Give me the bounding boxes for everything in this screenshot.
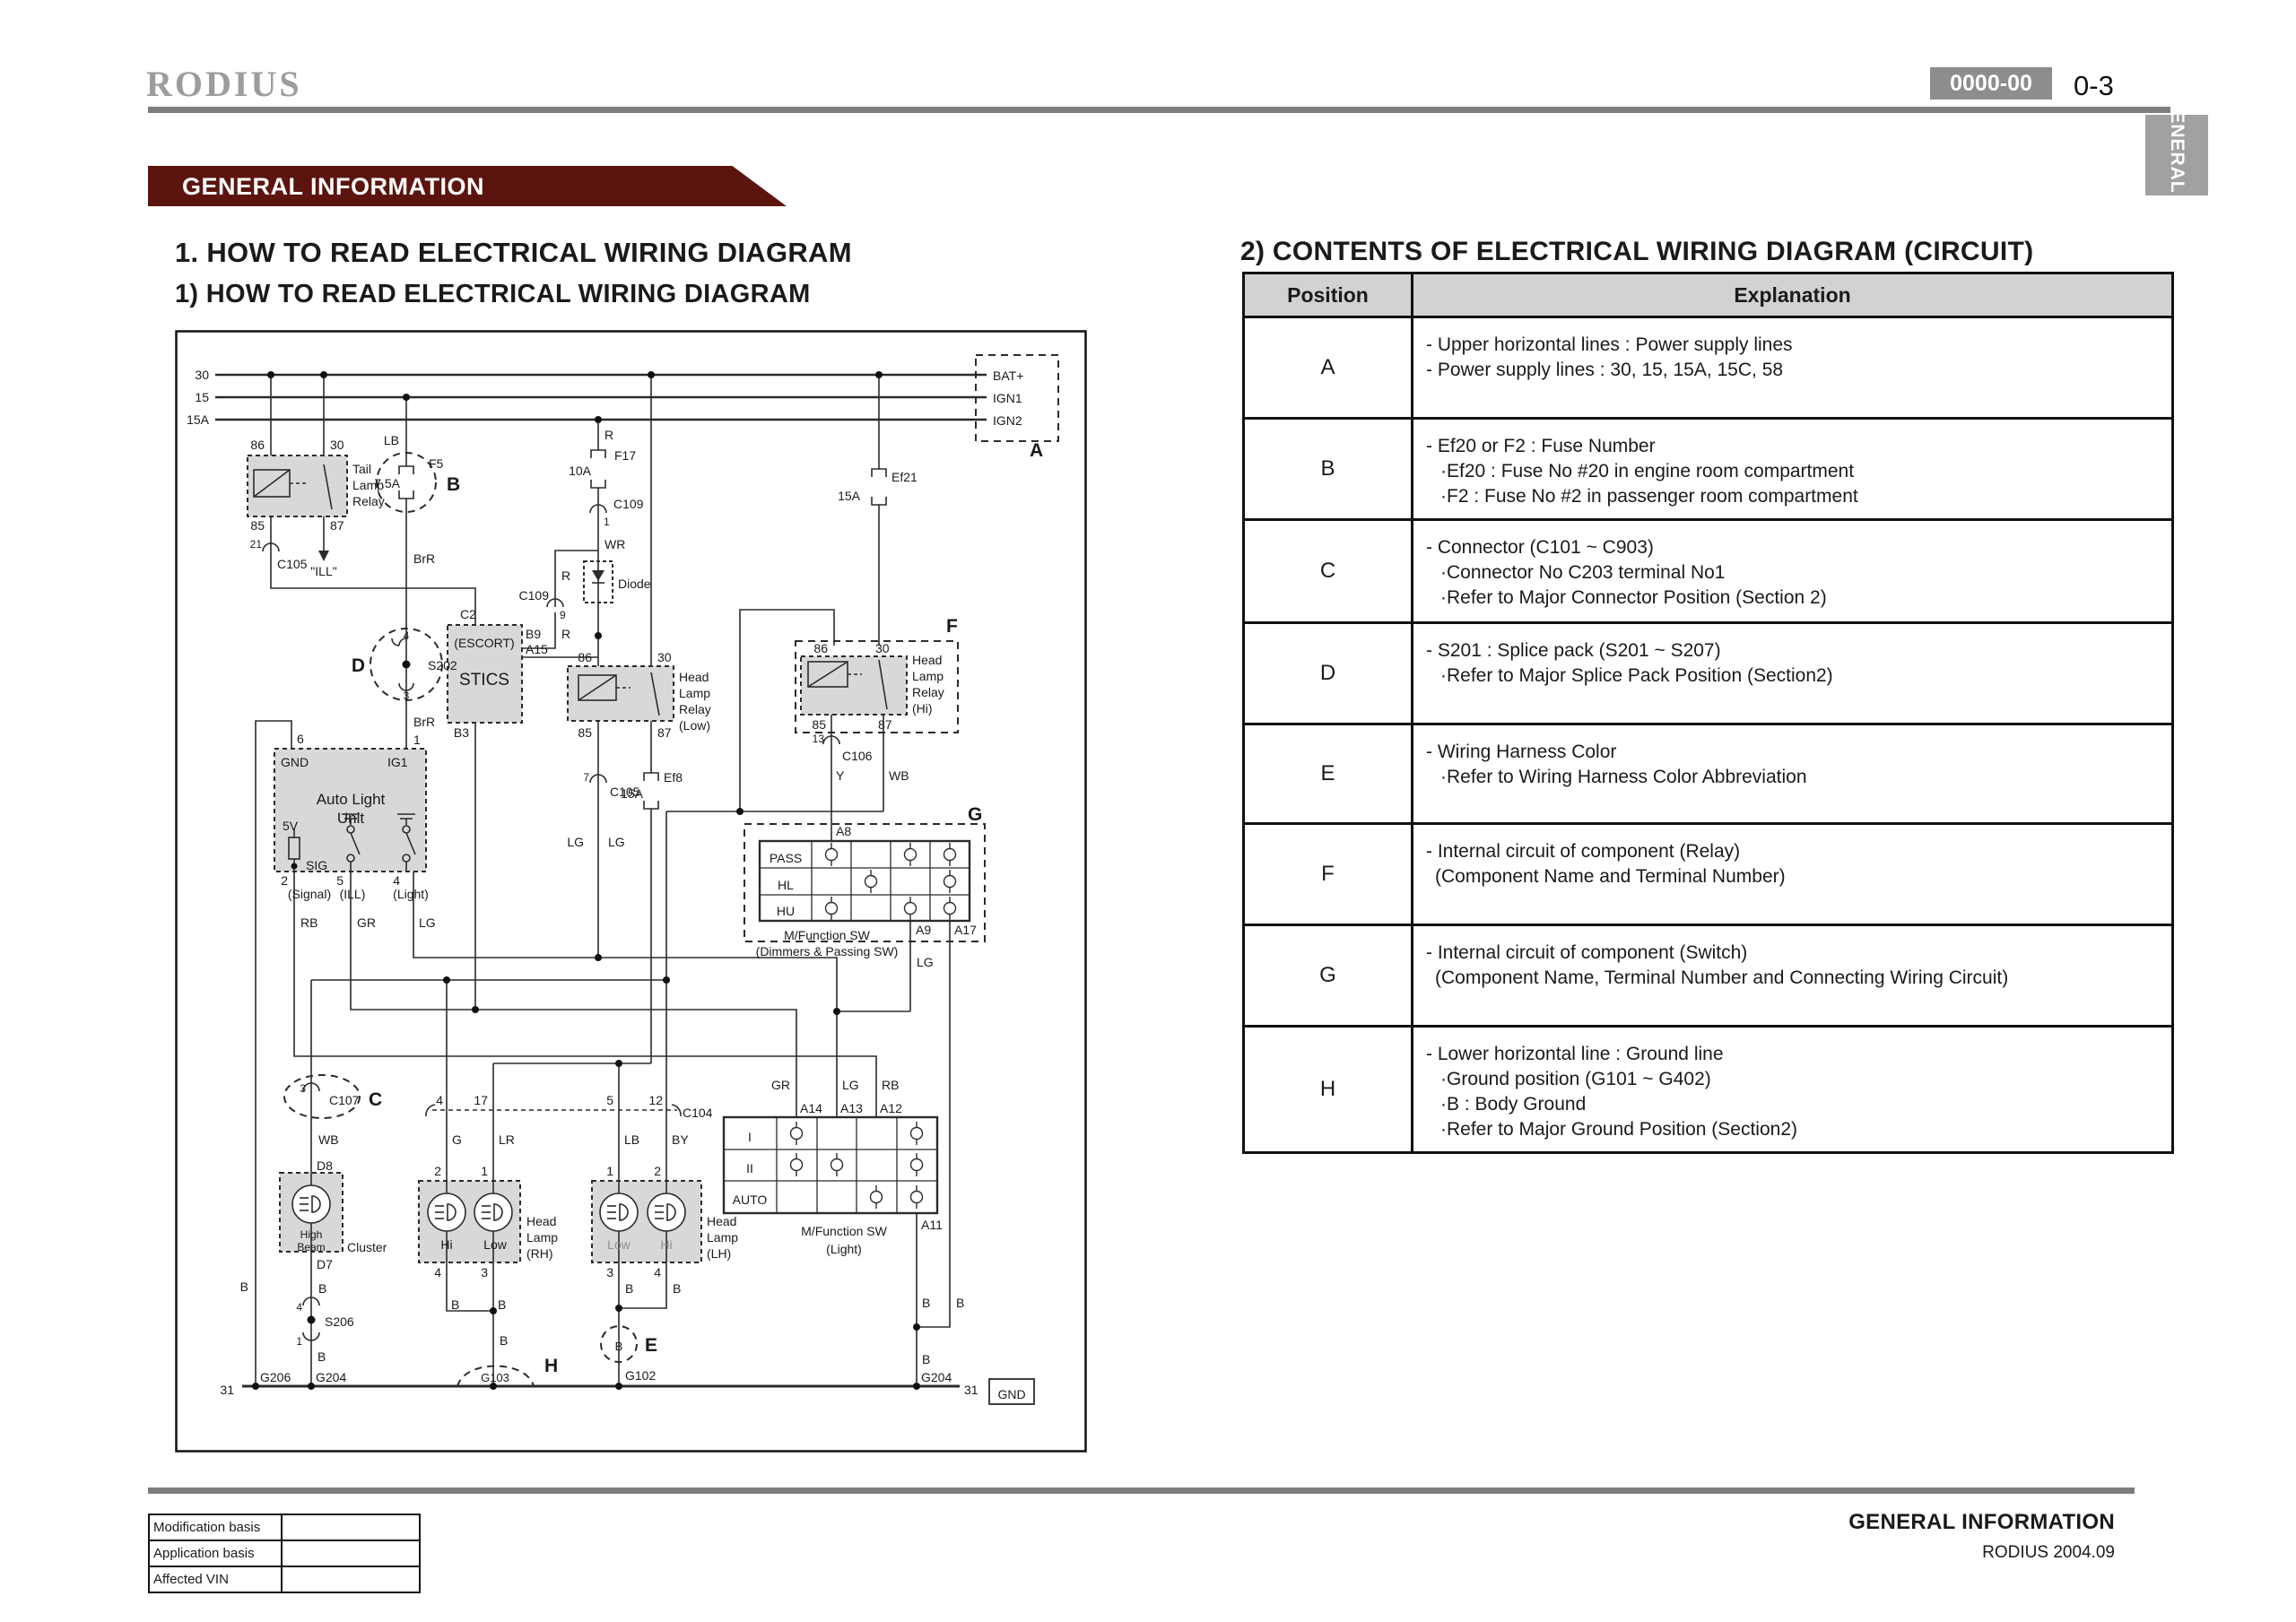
table-row: H- Lower horizontal line : Ground line·G… (1245, 1028, 2171, 1151)
diagram-label: E (645, 1335, 657, 1356)
diagram-label: C2 (460, 607, 476, 621)
ill-arrowhead (318, 551, 329, 561)
diagram-label: R (561, 627, 570, 641)
diagram-label: Beam (297, 1241, 325, 1253)
explanation-line: ·F2 : Fuse No #2 in passenger room compa… (1440, 484, 2161, 509)
diagram-label: B (500, 1333, 508, 1348)
diagram-label: B (922, 1352, 930, 1366)
diagram-label: R (604, 428, 613, 442)
fuse-F17-icon (591, 450, 605, 488)
diagram-label: LB (624, 1132, 639, 1147)
row-explanation: - S201 : Splice pack (S201 ~ S207)·Refer… (1413, 624, 2171, 723)
diagram-label: A (1030, 440, 1043, 461)
row-position: F (1245, 825, 1413, 924)
diagram-label: 4 (436, 1093, 443, 1107)
diagram-label: 2 (434, 1164, 441, 1178)
diagram-label: 1 (413, 733, 421, 747)
diagram-label: C109 (519, 588, 550, 603)
diagram-label: STICS (459, 671, 509, 690)
switch-tables (724, 841, 970, 1213)
diagram-label: A15 (526, 642, 548, 656)
diagram-label: 86 (578, 650, 592, 664)
diagram-label: A9 (916, 923, 931, 937)
diagram-label: SIG (306, 858, 327, 872)
diagram-label: II (746, 1161, 753, 1175)
diagram-label: IGN1 (993, 391, 1022, 405)
section-banner-title: GENERAL INFORMATION (182, 173, 484, 201)
explanation-line: ·Refer to Wiring Harness Color Abbreviat… (1440, 765, 2161, 790)
diagram-label: 30 (657, 650, 672, 664)
diagram-label: 4 (654, 1265, 661, 1279)
main-heading: 1. HOW TO READ ELECTRICAL WIRING DIAGRAM (175, 237, 852, 269)
diagram-label: G (452, 1132, 462, 1147)
diagram-label: G206 (260, 1370, 291, 1384)
sub-heading: 1) HOW TO READ ELECTRICAL WIRING DIAGRAM (175, 280, 811, 309)
diagram-label: A8 (836, 824, 851, 838)
diagram-label: B3 (454, 725, 469, 740)
diagram-label: 7.5A (374, 476, 400, 490)
diagram-label: Lamp (707, 1230, 738, 1245)
diagram-label: Hi (660, 1237, 672, 1252)
diagram-label: Y (836, 768, 845, 783)
diagram-label: GND (281, 755, 309, 769)
diagram-label: A14 (800, 1101, 822, 1115)
revision-label: Application basis (150, 1541, 283, 1566)
explanation-line: - Power supply lines : 30, 15, 15A, 15C,… (1426, 358, 2161, 383)
diagram-label: "ILL" (310, 564, 336, 578)
diagram-label: HL (778, 878, 794, 892)
diagram-label: S202 (428, 658, 457, 672)
diagram-label: G102 (625, 1368, 656, 1383)
diagram-label: RB (882, 1078, 899, 1092)
fuse-F5-icon (399, 466, 413, 499)
diagram-label: A17 (954, 923, 977, 937)
explanation-line: - Lower horizontal line : Ground line (1426, 1042, 2161, 1067)
diagram-label: Ef8 (664, 770, 683, 785)
diagram-label: B (625, 1281, 633, 1296)
diagram-label: Auto Light (317, 791, 386, 808)
column-header-explanation: Explanation (1413, 274, 2171, 316)
diagram-label: Low (483, 1237, 508, 1252)
diagram-label: 3 (481, 1265, 488, 1279)
explanation-line: - Ef20 or F2 : Fuse Number (1426, 434, 2161, 459)
row-explanation: - Connector (C101 ~ C903)·Connector No C… (1413, 521, 2171, 621)
diagram-label: LG (842, 1078, 859, 1092)
diagram-label: 86 (813, 641, 828, 655)
revision-label: Modification basis (150, 1515, 283, 1540)
explanation-line: - Internal circuit of component (Switch) (1426, 941, 2161, 966)
explanation-line: (Component Name and Terminal Number) (1435, 864, 2161, 889)
diagram-label: 31 (964, 1383, 978, 1397)
diagram-label: GR (771, 1078, 790, 1092)
diagram-label: RB (300, 915, 317, 930)
diagram-label: M/Function SW (801, 1224, 887, 1238)
diagram-label: 15A (621, 786, 644, 801)
row-explanation: - Ef20 or F2 : Fuse Number·Ef20 : Fuse N… (1413, 420, 2171, 518)
side-tab-general[interactable]: GENERAL (2145, 115, 2208, 195)
diagram-label: (Signal) (288, 887, 331, 901)
header-rule (148, 107, 2170, 113)
diagram-label: B (240, 1279, 248, 1294)
diagram-label: B (451, 1297, 459, 1312)
side-tab-label: GENERAL (2167, 115, 2187, 179)
diagram-label: Cluster (347, 1240, 387, 1254)
row-position: C (1245, 521, 1413, 621)
diagram-label: BAT+ (993, 369, 1023, 383)
diagram-label: WB (889, 768, 909, 783)
diagram-label: I (748, 1130, 752, 1144)
diagram-label: Diode (618, 577, 651, 591)
explanation-line: ·B : Body Ground (1440, 1092, 2161, 1117)
diagram-label: 1 (606, 1164, 613, 1178)
diagram-label: 87 (330, 518, 344, 533)
diagram-label: A13 (840, 1101, 863, 1115)
revision-value (283, 1515, 419, 1540)
explanation-line: ·Refer to Major Ground Position (Section… (1440, 1117, 2161, 1142)
wiring-diagram: 301515ABAT+IGN1IGN2A86308587TailLampRela… (175, 330, 1087, 1453)
diagram-label: PASS (770, 851, 802, 865)
diagram-label: 31 (220, 1383, 234, 1397)
explanation-line: ·Refer to Major Splice Pack Position (Se… (1440, 664, 2161, 689)
diagram-label: 2 (281, 873, 288, 888)
diagram-label: 15A (838, 489, 861, 503)
revision-table: Modification basisApplication basisAffec… (148, 1514, 421, 1593)
diagram-label: 12 (648, 1093, 663, 1107)
row-position: G (1245, 926, 1413, 1025)
footer-section-title: GENERAL INFORMATION (1848, 1510, 2115, 1535)
diagram-label: BY (672, 1132, 689, 1147)
row-position: D (1245, 624, 1413, 723)
table-row: D- S201 : Splice pack (S201 ~ S207)·Refe… (1245, 624, 2171, 725)
diagram-label: 6 (297, 732, 304, 746)
diagram-label: G103 (481, 1371, 509, 1384)
column-header-position: Position (1245, 274, 1413, 316)
diagram-label: (Dimmers & Passing SW) (756, 944, 899, 958)
explanation-line: ·Refer to Major Connector Position (Sect… (1440, 585, 2161, 611)
explanation-line: - Wiring Harness Color (1426, 740, 2161, 765)
explanation-table: Position Explanation A- Upper horizontal… (1242, 272, 2174, 1154)
diagram-label: IGN2 (993, 413, 1022, 428)
diode-triangle (592, 570, 604, 581)
diagram-label: 3 (300, 1082, 306, 1095)
revision-row: Application basis (150, 1541, 419, 1567)
row-position: E (1245, 725, 1413, 822)
footer-rule (148, 1488, 2135, 1494)
diagram-label: Tail (352, 462, 371, 476)
diagram-label: Lamp (526, 1230, 558, 1245)
diagram-label: 3 (606, 1265, 613, 1279)
diagram-label: (RH) (526, 1246, 553, 1261)
diagram-label: B (318, 1281, 326, 1296)
diagram-label: B (956, 1296, 964, 1310)
brand-logo: RODIUS (146, 63, 302, 105)
row-explanation: - Internal circuit of component (Relay)(… (1413, 825, 2171, 924)
diagram-label: 85 (812, 717, 826, 732)
diagram-label: GND (997, 1387, 1025, 1401)
table-row: G- Internal circuit of component (Switch… (1245, 926, 2171, 1028)
diagram-label: 86 (250, 438, 265, 452)
section-code-badge: 0000-00 (1930, 67, 2052, 100)
diagram-label: R (561, 568, 570, 583)
diagram-label: Lamp (679, 686, 710, 700)
table-row: F- Internal circuit of component (Relay)… (1245, 825, 2171, 926)
diagram-label: F (946, 616, 958, 637)
diagram-label: 5V (283, 819, 299, 833)
diagram-label: BrR (413, 551, 435, 566)
diagram-label: 15 (195, 390, 209, 404)
diagram-label: 4 (296, 1301, 302, 1314)
diagram-label: 1 (481, 1164, 488, 1178)
fuse-Ef8-icon (644, 773, 658, 809)
diagram-label: 1 (296, 1335, 302, 1348)
diagram-label: (LH) (707, 1246, 731, 1261)
diagram-label: Lamp (912, 669, 944, 683)
diagram-label: Relay (679, 702, 711, 716)
row-position: A (1245, 318, 1413, 417)
explanation-line: (Component Name, Terminal Number and Con… (1435, 966, 2161, 991)
diagram-label: 15A (187, 412, 210, 427)
diagram-label: LG (608, 835, 625, 849)
explanation-line: ·Ground position (G101 ~ G402) (1440, 1067, 2161, 1092)
diagram-label: 30 (195, 368, 209, 382)
diagram-label: LR (499, 1132, 515, 1147)
diagram-label: D7 (317, 1257, 333, 1271)
diagram-label: 7 (583, 771, 589, 784)
diagram-label: A11 (921, 1218, 943, 1232)
diagram-label: Ef21 (891, 470, 918, 484)
diagram-label: LG (567, 835, 584, 849)
diagram-label: C107 (329, 1093, 360, 1107)
diagram-label: HU (777, 904, 795, 918)
diagram-label: F17 (614, 448, 636, 463)
diagram-label: WB (318, 1132, 339, 1147)
diagram-label: (Hi) (912, 701, 933, 716)
diagram-label: 30 (330, 438, 344, 452)
footer-model-version: RODIUS 2004.09 (1848, 1543, 2115, 1563)
diagram-label: Head (679, 670, 709, 684)
fuse-Ef21-icon (872, 469, 886, 505)
diagram-label: 9 (560, 609, 566, 621)
diagram-label: Relay (912, 685, 944, 699)
diagram-label: (Light) (393, 887, 429, 901)
explanation-line: - Internal circuit of component (Relay) (1426, 839, 2161, 864)
diagram-label: D8 (317, 1158, 333, 1173)
diagram-label: 2 (654, 1164, 661, 1178)
explanation-table-header: Position Explanation (1245, 274, 2171, 318)
diagram-label: 3 (404, 690, 410, 702)
diagram-label: WR (604, 537, 625, 551)
diagram-label: B (615, 1340, 623, 1353)
diagram-label: M/Function SW (784, 928, 870, 942)
diagram-label: D (352, 655, 365, 676)
row-explanation: - Internal circuit of component (Switch)… (1413, 926, 2171, 1025)
row-position: H (1245, 1028, 1413, 1151)
explanation-line: - Upper horizontal lines : Power supply … (1426, 333, 2161, 358)
table-row: A- Upper horizontal lines : Power supply… (1245, 318, 2171, 420)
diagram-label: LB (384, 433, 399, 447)
diagram-label: BrR (413, 715, 435, 729)
diagram-label: 17 (474, 1093, 488, 1107)
diagram-label: C105 (277, 557, 308, 571)
section-banner: GENERAL INFORMATION (148, 166, 787, 206)
diagram-label: 4 (404, 629, 410, 642)
row-explanation: - Upper horizontal lines : Power supply … (1413, 318, 2171, 417)
diagram-label: H (544, 1356, 558, 1376)
revision-row: Affected VIN (150, 1567, 419, 1592)
diagram-label: C106 (842, 749, 873, 763)
diagram-label: IG1 (387, 755, 408, 769)
diagram-label: 13 (813, 733, 825, 745)
diagram-label: G204 (921, 1370, 952, 1384)
diagram-label: B (922, 1296, 930, 1310)
diagram-label: C (369, 1089, 382, 1110)
diagram-label: 85 (578, 725, 592, 740)
diagram-label: Head (707, 1214, 736, 1228)
page-number: 0-3 (2074, 70, 2114, 102)
diagram-label: AUTO (733, 1193, 768, 1207)
diagram-label: 4 (393, 873, 400, 888)
diagram-label: LG (419, 915, 436, 930)
diagram-label: B (317, 1349, 326, 1364)
diagram-label: 5 (336, 873, 344, 888)
table-row: C- Connector (C101 ~ C903)·Connector No … (1245, 521, 2171, 624)
diagram-label: 87 (657, 725, 672, 740)
diagram-label: B (673, 1281, 681, 1296)
diagram-label: Head (526, 1214, 556, 1228)
table-row: B- Ef20 or F2 : Fuse Number·Ef20 : Fuse … (1245, 420, 2171, 521)
diagram-label: (Light) (826, 1242, 862, 1256)
diagram-label: Low (607, 1237, 631, 1252)
diagram-label: G204 (316, 1370, 346, 1384)
diagram-label: C104 (683, 1106, 713, 1120)
explanation-table-body: A- Upper horizontal lines : Power supply… (1245, 318, 2171, 1151)
right-heading: 2) CONTENTS OF ELECTRICAL WIRING DIAGRAM… (1240, 237, 2033, 267)
diagram-label: High (300, 1228, 323, 1241)
footer-right: GENERAL INFORMATION RODIUS 2004.09 (1848, 1510, 2115, 1563)
diagram-label: G (968, 804, 982, 825)
explanation-line: ·Connector No C203 terminal No1 (1440, 560, 2161, 585)
row-explanation: - Lower horizontal line : Ground line·Gr… (1413, 1028, 2171, 1151)
explanation-line: ·Ef20 : Fuse No #20 in engine room compa… (1440, 459, 2161, 484)
explanation-line: - Connector (C101 ~ C903) (1426, 535, 2161, 560)
diagram-label: 21 (250, 538, 263, 551)
diagram-label: 4 (434, 1265, 441, 1279)
diagram-label: 1 (604, 516, 610, 528)
power-rails (215, 375, 987, 420)
diagram-label: (ESCORT) (454, 636, 514, 650)
revision-value (283, 1541, 419, 1566)
diagram-label: 5 (606, 1093, 613, 1107)
diagram-label: GR (357, 915, 376, 930)
diagram-label: (Low) (679, 718, 710, 733)
row-explanation: - Wiring Harness Color·Refer to Wiring H… (1413, 725, 2171, 822)
revision-row: Modification basis (150, 1515, 419, 1541)
diagram-label: 10A (569, 464, 592, 478)
diagram-label: S206 (325, 1314, 354, 1329)
revision-label: Affected VIN (150, 1567, 283, 1592)
diagram-label: C109 (613, 497, 644, 511)
diagram-label: (ILL) (340, 887, 366, 901)
diagram-label: Head (912, 653, 942, 667)
explanation-line: - S201 : Splice pack (S201 ~ S207) (1426, 638, 2161, 664)
diagram-label: 30 (875, 641, 890, 655)
diagram-label: B (447, 474, 460, 495)
diagram-label: F5 (429, 456, 444, 471)
row-position: B (1245, 420, 1413, 518)
diagram-label: B9 (526, 627, 541, 641)
table-row: E- Wiring Harness Color·Refer to Wiring … (1245, 725, 2171, 825)
revision-value (283, 1567, 419, 1592)
diagram-label: Unit (337, 810, 365, 827)
diagram-label: Relay (352, 494, 385, 508)
diagram-label: 87 (878, 717, 892, 732)
diagram-label: 85 (250, 518, 265, 533)
diagram-label: B (498, 1297, 506, 1312)
diagram-label: Hi (440, 1237, 452, 1252)
diagram-label: A12 (880, 1101, 902, 1115)
diagram-label: LG (917, 955, 934, 969)
